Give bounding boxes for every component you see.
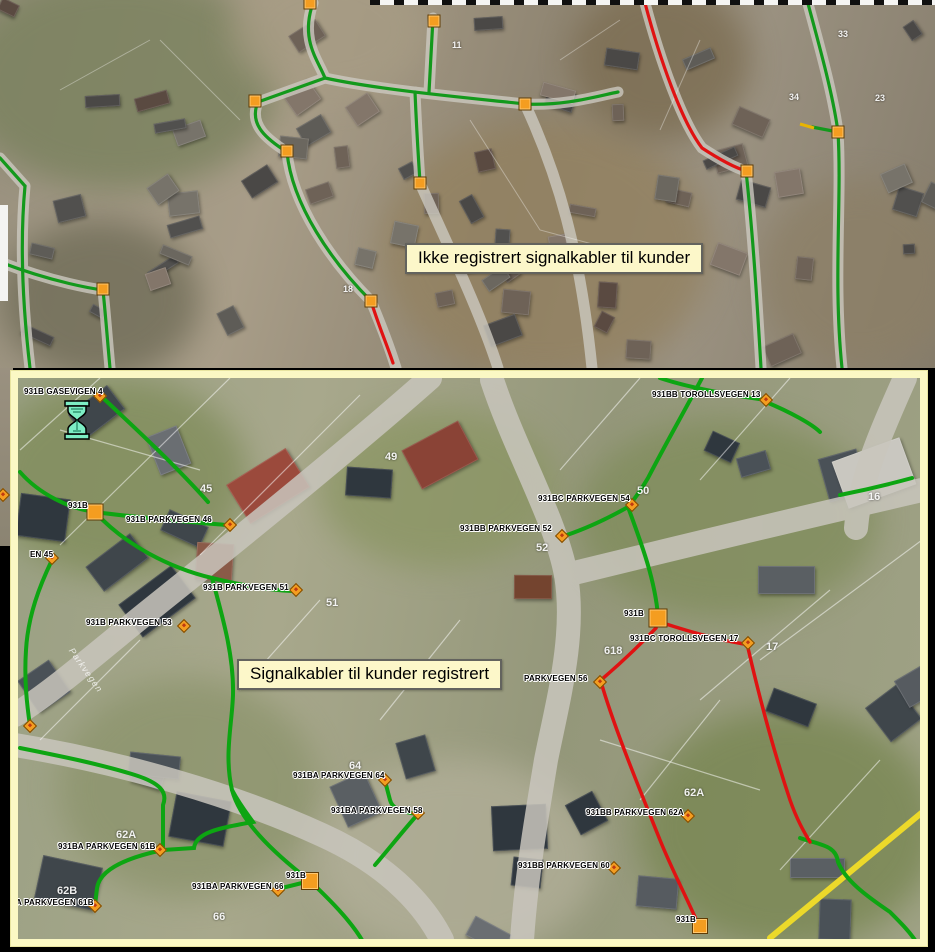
address-label: 931BB PARKVEGEN 52 [460,524,552,533]
address-label: 931B PARKVEGEN 46 [126,515,212,524]
yellow-stub-top [800,124,814,128]
address-label: 931BB PARKVEGEN 62A [586,808,684,817]
map-edge-dashes [370,0,935,5]
address-label: 931B [68,501,88,510]
callout-unregistered: Ikke registrert signalkabler til kunder [405,243,703,274]
house-number: 49 [385,451,397,463]
junction-node-marker[interactable] [741,165,754,178]
address-label: 931B PARKVEGEN 53 [86,618,172,627]
junction-node-marker[interactable] [97,283,110,296]
house-number: 62A [684,787,704,799]
cable-overlay-top [0,0,935,368]
address-label: 931BA PARKVEGEN 66 [192,882,284,891]
house-number: 45 [200,483,212,495]
junction-node-marker[interactable] [365,295,378,308]
address-label: 931B [624,609,644,618]
address-label: 931B [286,871,306,880]
house-number: 34 [789,92,799,102]
house-number: 11 [452,40,462,50]
junction-node-marker[interactable] [87,504,104,521]
overview-map-panel[interactable]: 1133342318 Ikke registrert signalkabler … [0,0,935,368]
house-number: 62A [116,829,136,841]
house-number: 18 [343,284,353,294]
house-number: 66 [213,911,225,923]
detail-map-panel[interactable]: 931B GASEVIGEN 4931BB TOROLLSVEGEN 13931… [18,378,920,939]
house-number: 52 [536,542,548,554]
address-label: EN 45 [30,550,53,559]
house-number: 618 [604,645,622,657]
house-number: 16 [868,491,880,503]
junction-node-marker[interactable] [414,177,427,190]
address-label: 931BC PARKVEGEN 54 [538,494,630,503]
address-label: A PARKVEGEN 61B [18,898,94,907]
customer-endpoint-marker[interactable] [0,488,10,502]
parcel-lines-top [60,20,700,252]
junction-node-marker[interactable] [428,15,441,28]
house-number: 50 [637,485,649,497]
address-label: 931BC TOROLLSVEGEN 17 [630,634,739,643]
address-label: 931BA PARKVEGEN 61B [58,842,156,851]
house-number: 33 [838,29,848,39]
house-number: 62B [57,885,77,897]
gis-application-view: 1133342318 Ikke registrert signalkabler … [0,0,935,952]
junction-node-marker[interactable] [649,609,668,628]
junction-node-marker[interactable] [304,0,317,10]
house-number: 51 [326,597,338,609]
address-label: 931B GASEVIGEN 4 [24,387,103,396]
junction-node-marker[interactable] [832,126,845,139]
map-edge-gap [0,205,8,301]
address-label: 931BA PARKVEGEN 64 [293,771,385,780]
address-label: 931BB TOROLLSVEGEN 13 [652,390,761,399]
address-label: 931BA PARKVEGEN 58 [331,806,423,815]
address-label: PARKVEGEN 56 [524,674,588,683]
house-number: 17 [766,641,778,653]
junction-node-marker[interactable] [249,95,262,108]
house-number: 23 [875,93,885,103]
junction-node-marker[interactable] [519,98,532,111]
detail-map-frame: 931B GASEVIGEN 4931BB TOROLLSVEGEN 13931… [10,370,928,947]
address-label: 931B PARKVEGEN 51 [203,583,289,592]
callout-registered: Signalkabler til kunder registrert [237,659,502,690]
house-number: 64 [349,760,361,772]
hourglass-cursor-icon [64,400,90,445]
address-label: 931B [676,915,696,924]
junction-node-marker[interactable] [281,145,294,158]
address-label: 931BB PARKVEGEN 60 [518,861,610,870]
